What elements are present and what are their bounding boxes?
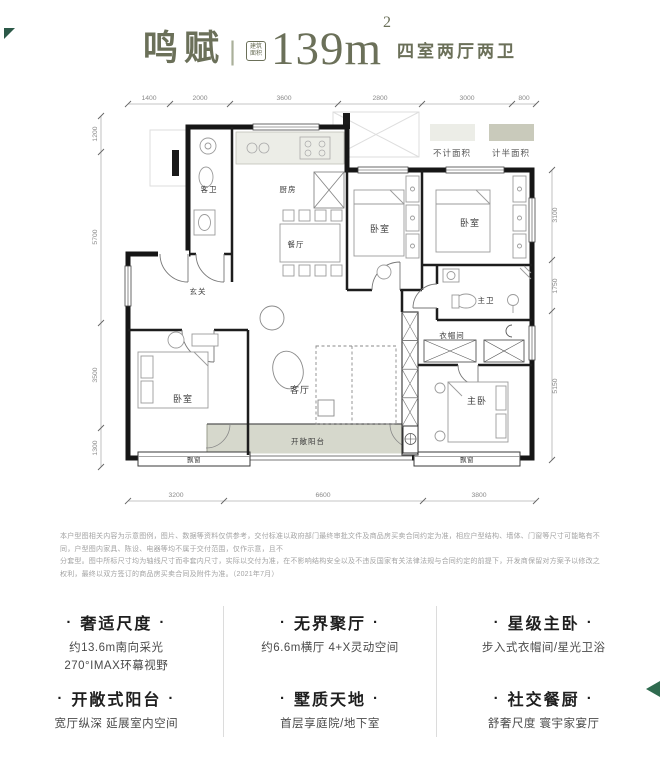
feature-title: 奢适尺度	[80, 610, 152, 634]
dim-label: 800	[518, 95, 530, 102]
room-label-guest-bath: 客卫	[201, 184, 218, 194]
room-label-master-bath: 主卫	[478, 295, 495, 305]
room-label-cloakroom: 衣帽间	[439, 330, 465, 340]
dim-label: 2800	[372, 95, 387, 102]
feature-block: ·奢适尺度· 约13.6m南向采光 270°IMAX环幕视野	[16, 610, 217, 676]
dim-label: 1400	[141, 95, 156, 102]
room-label-bedroom2: 卧室	[460, 217, 480, 228]
feature-line: 约13.6m南向采光	[16, 641, 217, 657]
dim-label: 3100	[552, 207, 559, 222]
bullet: ·	[494, 614, 501, 631]
feature-title: 社交餐厨	[508, 686, 580, 710]
equipment-platform	[403, 426, 418, 453]
room-label-living: 客厅	[290, 384, 310, 395]
kitchen-counter	[236, 132, 344, 164]
bullet: ·	[280, 690, 287, 707]
entry-gap	[158, 251, 189, 258]
dim-label: 3600	[276, 95, 291, 102]
room-label-dining: 餐厅	[288, 240, 305, 249]
feature-column-2: ·无界聚厅· 约6.6m横厅 4+X灵动空间 ·墅质天地· 首层享庭院/地下室	[223, 606, 438, 737]
dim-label: 3000	[459, 95, 474, 102]
dim-label: 5700	[92, 229, 99, 244]
bullet: ·	[373, 614, 380, 631]
feature-block: ·社交餐厨· 舒奢尺度 寰宇家宴厅	[443, 686, 644, 733]
room-label-kitchen: 厨房	[280, 184, 297, 194]
feature-title: 墅质天地	[294, 686, 366, 710]
legend-label-excluded: 不计面积	[433, 148, 471, 158]
bullet: ·	[373, 690, 380, 707]
feature-line: 舒奢尺度 寰宇家宴厅	[443, 717, 644, 733]
legend-swatch-excluded	[430, 124, 475, 141]
feature-line: 步入式衣帽间/星光卫浴	[443, 641, 644, 657]
bullet: ·	[587, 614, 594, 631]
feature-title: 星级主卧	[508, 610, 580, 634]
feature-line: 约6.6m横厅 4+X灵动空间	[230, 641, 431, 657]
bullet: ·	[494, 690, 501, 707]
feature-title: 开敞式阳台	[71, 686, 161, 710]
bullet: ·	[57, 690, 64, 707]
dim-label: 1750	[552, 278, 559, 293]
legend: 不计面积 计半面积	[430, 124, 534, 158]
dim-label: 3800	[471, 492, 486, 499]
room-label-balcony: 开敞阳台	[291, 436, 325, 446]
floorplan-page: 鸣赋 | 建筑 面积 139m2 四室两厅两卫	[0, 0, 660, 772]
room-label-bedroom3: 卧室	[173, 393, 193, 404]
dim-label: 1200	[92, 126, 99, 141]
bullet: ·	[159, 614, 166, 631]
feature-line: 首层享庭院/地下室	[230, 717, 431, 733]
room-label-master-bedroom: 主卧	[467, 395, 487, 406]
bullet: ·	[66, 614, 73, 631]
dim-label: 1300	[92, 440, 99, 455]
room-label-bay-window-right: 飘窗	[460, 455, 474, 464]
bullet: ·	[280, 614, 287, 631]
feature-column-3: ·星级主卧· 步入式衣帽间/星光卫浴 ·社交餐厨· 舒奢尺度 寰宇家宴厅	[437, 606, 650, 737]
dim-label: 5150	[552, 378, 559, 393]
room-label-bay-window-left: 飘窗	[187, 455, 201, 464]
feature-line: 270°IMAX环幕视野	[16, 659, 217, 675]
feature-block: ·无界聚厅· 约6.6m横厅 4+X灵动空间	[230, 610, 431, 676]
legend-label-half: 计半面积	[492, 148, 530, 158]
feature-title: 无界聚厅	[294, 610, 366, 634]
disclaimer-line2: 分套型。图中所标尺寸均为轴线尺寸而非套内尺寸，实际以交付为准，在不影响结构安全以…	[60, 556, 600, 581]
disclaimer-line1: 本户型图相关内容为示意图例，图片、数据等资料仅供参考，交付标准以政府部门最终审批…	[60, 531, 600, 556]
dim-label: 6600	[315, 492, 330, 499]
feature-block: ·墅质天地· 首层享庭院/地下室	[230, 686, 431, 733]
dim-label: 3500	[92, 367, 99, 382]
dim-label: 3200	[168, 492, 183, 499]
features: ·奢适尺度· 约13.6m南向采光 270°IMAX环幕视野 ·开敞式阳台· 宽…	[10, 606, 650, 737]
dim-label: 2000	[192, 95, 207, 102]
room-label-foyer: 玄关	[190, 286, 207, 296]
disclaimer: 本户型图相关内容为示意图例，图片、数据等资料仅供参考，交付标准以政府部门最终审批…	[60, 531, 600, 581]
legend-swatch-half	[489, 124, 534, 141]
feature-block: ·开敞式阳台· 宽厅纵深 延展室内空间	[16, 686, 217, 733]
room-label-bedroom1: 卧室	[370, 223, 390, 234]
feature-column-1: ·奢适尺度· 约13.6m南向采光 270°IMAX环幕视野 ·开敞式阳台· 宽…	[10, 606, 223, 737]
wall-stub	[172, 150, 179, 176]
feature-line: 宽厅纵深 延展室内空间	[16, 717, 217, 733]
feature-block: ·星级主卧· 步入式衣帽间/星光卫浴	[443, 610, 644, 676]
bullet: ·	[168, 690, 175, 707]
bullet: ·	[587, 690, 594, 707]
